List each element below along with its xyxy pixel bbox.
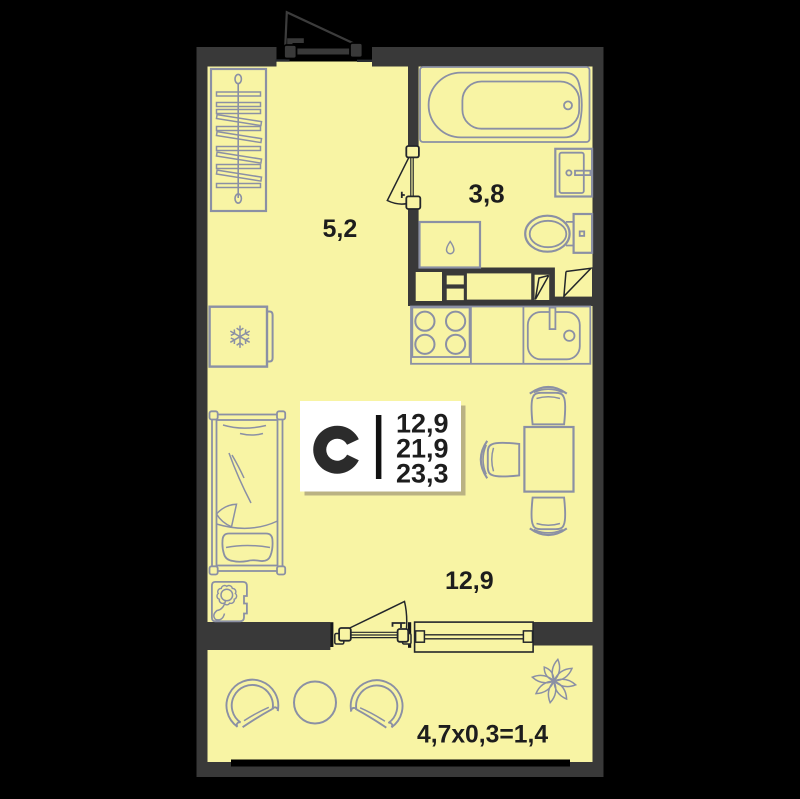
svg-text:3,8: 3,8 — [469, 179, 505, 209]
svg-text:23,3: 23,3 — [396, 459, 449, 489]
svg-text:4,7x0,3=1,4: 4,7x0,3=1,4 — [417, 722, 548, 749]
svg-text:12,9: 12,9 — [445, 567, 494, 595]
svg-text:5,2: 5,2 — [323, 215, 358, 243]
